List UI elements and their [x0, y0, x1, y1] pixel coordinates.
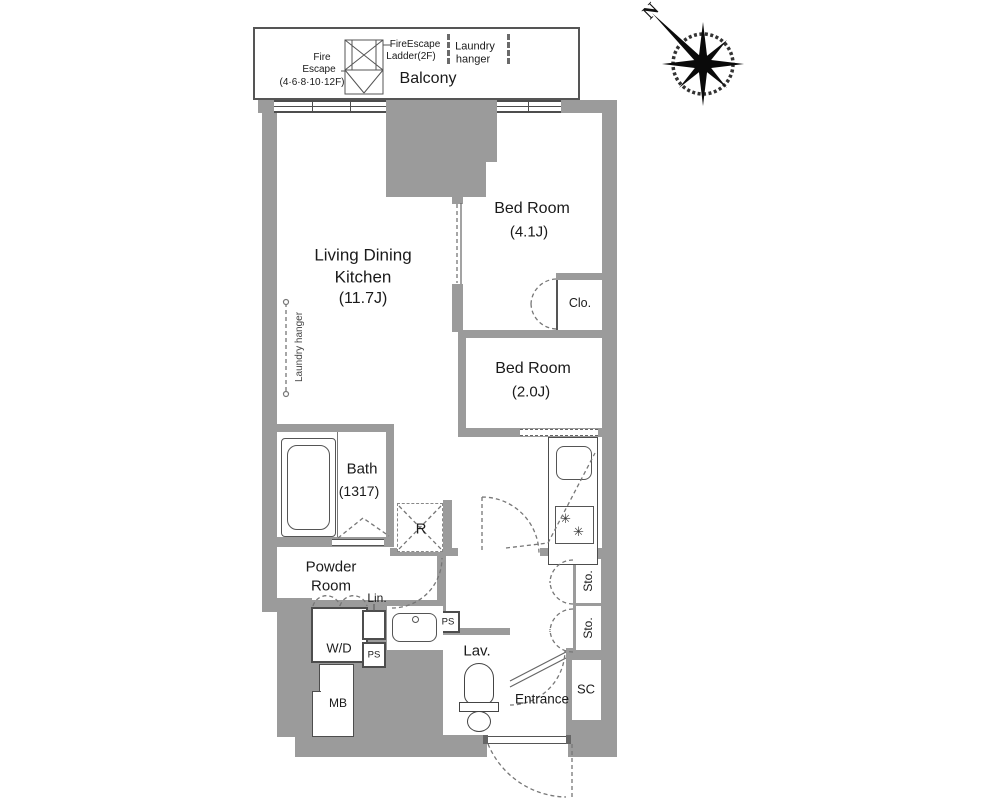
washer-dryer-door-arcs — [313, 596, 367, 606]
pipe-space-label-2: PS — [442, 617, 455, 627]
ldk-label-line2: Kitchen — [335, 269, 392, 286]
bath-size-label: (1317) — [339, 484, 379, 498]
entrance-label: Entrance — [515, 692, 569, 706]
ldk-label-line1: Living Dining — [314, 247, 411, 264]
washer-dryer-label: W/D — [326, 642, 351, 655]
plan-linework — [0, 0, 999, 801]
powder-room-label-line2: Room — [311, 579, 351, 594]
storage2-door-arcs — [550, 609, 573, 652]
entrance-step-lines — [461, 203, 566, 687]
powder-room-label-line1: Powder — [306, 560, 357, 575]
ldk-size-label: (11.7J) — [339, 291, 388, 307]
storage-label-2: Sto. — [582, 617, 594, 638]
fire-escape-hatch-icon — [345, 40, 383, 94]
compass-north-label: N — [640, 0, 663, 24]
closet-door-arc — [531, 279, 556, 329]
bedroom2-size-label: (2.0J) — [512, 385, 550, 400]
bedroom1-size-label: (4.1J) — [510, 225, 548, 240]
meter-box-label: MB — [329, 697, 347, 709]
bath-door-fold — [338, 518, 389, 538]
refrigerator-label: R — [416, 522, 427, 537]
bedroom1-label: Bed Room — [494, 201, 570, 217]
floor-plan: Balcony Fire Escape (4·6·8·10·12F) FireE… — [0, 0, 999, 801]
compass-icon: N — [640, 0, 770, 120]
closet-label: Clo. — [569, 297, 591, 310]
leader-lines — [341, 45, 391, 611]
powder-room-door-arc — [392, 558, 442, 608]
storage1-door-arcs — [550, 560, 573, 604]
pipe-space-label-1: PS — [368, 650, 381, 660]
linen-label: Lin. — [367, 592, 386, 604]
entrance-door-arc — [488, 744, 572, 799]
bath-label: Bath — [347, 462, 378, 477]
ldk-laundry-hanger-label: Laundry hanger — [295, 312, 305, 382]
shoe-closet-label: SC — [577, 683, 595, 696]
lavatory-label: Lav. — [463, 644, 490, 659]
bedroom2-label: Bed Room — [495, 361, 571, 377]
storage-label-1: Sto. — [582, 570, 594, 591]
kitchen-cabinet-dashes — [506, 453, 595, 548]
